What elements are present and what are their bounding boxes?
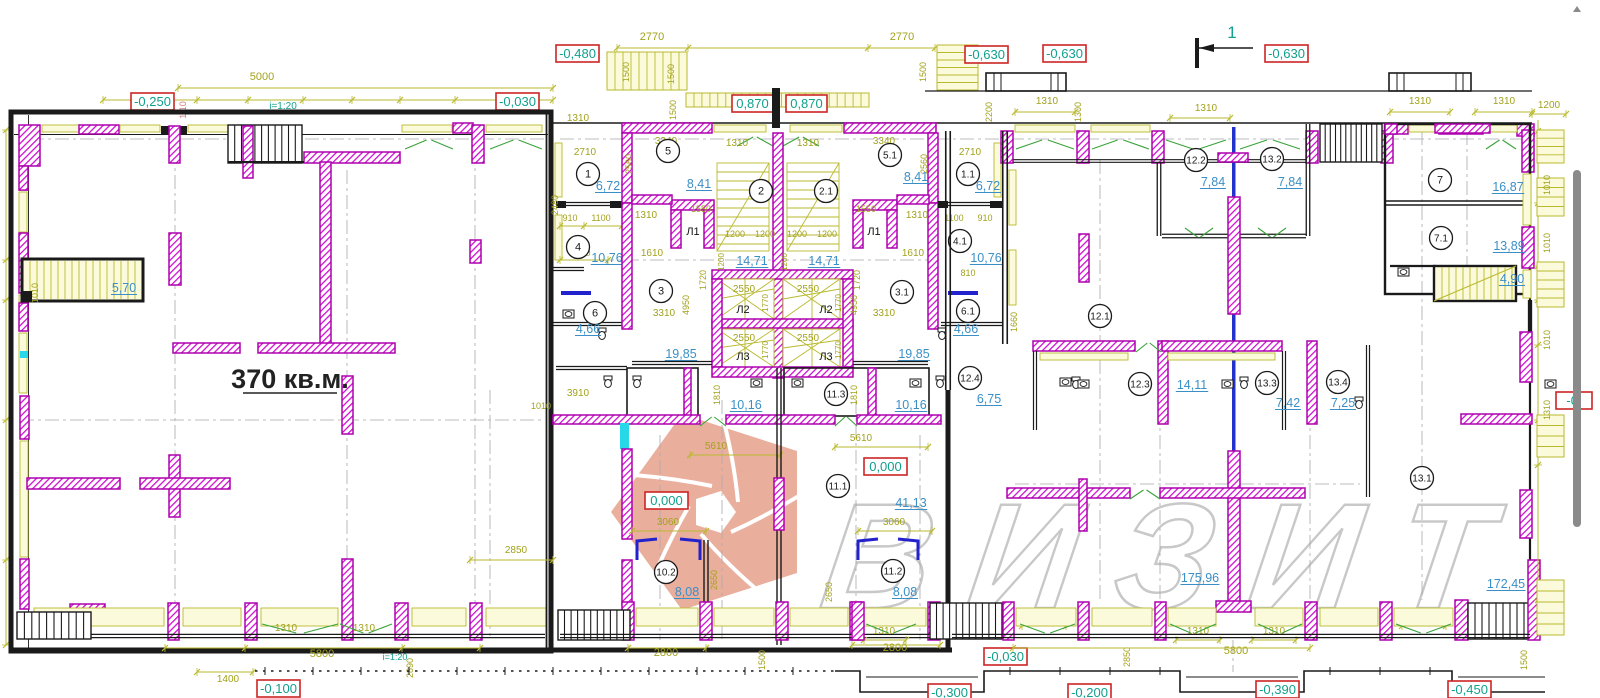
svg-text:Л1: Л1 (686, 226, 699, 238)
svg-text:172,45: 172,45 (1487, 577, 1525, 591)
svg-text:6,72: 6,72 (596, 179, 620, 193)
svg-text:13.3: 13.3 (1257, 379, 1277, 390)
svg-text:5000: 5000 (250, 71, 274, 83)
svg-text:2710: 2710 (959, 147, 982, 158)
svg-text:3060: 3060 (657, 517, 680, 528)
svg-text:5: 5 (665, 146, 671, 158)
svg-text:1310: 1310 (635, 210, 658, 221)
svg-text:Л2: Л2 (819, 304, 832, 316)
svg-text:1810: 1810 (849, 385, 859, 405)
svg-text:10,76: 10,76 (591, 251, 622, 265)
svg-text:13.1: 13.1 (1412, 474, 1432, 485)
svg-text:1310: 1310 (1036, 96, 1059, 107)
svg-text:910: 910 (562, 213, 577, 223)
svg-text:5610: 5610 (705, 441, 728, 452)
svg-text:Л3: Л3 (819, 351, 832, 363)
svg-text:1010: 1010 (1542, 330, 1552, 350)
svg-text:3: 3 (658, 286, 664, 298)
svg-text:1550: 1550 (856, 204, 876, 214)
svg-text:4950: 4950 (849, 295, 859, 315)
svg-text:7,25: 7,25 (1331, 396, 1355, 410)
svg-text:175,96: 175,96 (1181, 571, 1219, 585)
svg-text:1200: 1200 (1538, 100, 1561, 111)
svg-text:2.1: 2.1 (819, 187, 833, 198)
svg-text:14,11: 14,11 (1177, 378, 1207, 392)
svg-text:2770: 2770 (890, 31, 914, 43)
svg-text:4.1: 4.1 (953, 237, 967, 248)
svg-text:-0,630: -0,630 (1046, 46, 1083, 61)
svg-text:1770: 1770 (761, 294, 770, 312)
svg-text:1720: 1720 (698, 270, 708, 290)
svg-text:1.1: 1.1 (961, 170, 975, 181)
svg-text:13,89: 13,89 (1493, 239, 1524, 253)
svg-text:1310: 1310 (275, 623, 298, 634)
svg-text:-0,200: -0,200 (1071, 685, 1108, 698)
svg-text:-0,630: -0,630 (968, 47, 1005, 62)
svg-text:5,70: 5,70 (112, 281, 136, 295)
svg-text:0,000: 0,000 (869, 459, 902, 474)
svg-text:2770: 2770 (640, 31, 664, 43)
svg-text:-0,300: -0,300 (931, 685, 968, 698)
svg-text:19,85: 19,85 (665, 347, 696, 361)
svg-text:1770: 1770 (761, 341, 770, 359)
svg-text:12.1: 12.1 (1090, 312, 1110, 323)
svg-text:1810: 1810 (712, 385, 722, 405)
svg-text:1: 1 (585, 169, 591, 181)
svg-text:1500: 1500 (1519, 650, 1529, 670)
svg-text:Л3: Л3 (736, 351, 749, 363)
svg-text:0,870: 0,870 (790, 96, 823, 111)
svg-text:13.4: 13.4 (1328, 378, 1348, 389)
svg-text:1310: 1310 (726, 138, 749, 149)
svg-text:1500: 1500 (918, 62, 928, 82)
svg-text:1010: 1010 (1542, 175, 1552, 195)
svg-text:1: 1 (1227, 23, 1236, 42)
svg-text:1310: 1310 (1542, 400, 1552, 420)
svg-text:1310: 1310 (906, 210, 929, 221)
svg-text:1310: 1310 (1195, 103, 1218, 114)
svg-text:13.2: 13.2 (1262, 155, 1282, 166)
svg-text:6: 6 (592, 308, 598, 320)
svg-text:1550: 1550 (691, 204, 711, 214)
svg-text:5.1: 5.1 (883, 151, 897, 162)
svg-text:-0,030: -0,030 (499, 94, 536, 109)
svg-text:2850: 2850 (505, 545, 528, 556)
svg-text:-0,250: -0,250 (134, 94, 171, 109)
svg-text:4,66: 4,66 (576, 322, 600, 336)
svg-text:2890: 2890 (405, 658, 415, 678)
svg-text:i=1:20: i=1:20 (383, 652, 408, 662)
svg-text:5800: 5800 (310, 648, 334, 660)
svg-text:1770: 1770 (834, 294, 843, 312)
svg-text:1720: 1720 (852, 270, 862, 290)
svg-text:1400: 1400 (217, 674, 240, 685)
svg-text:810: 810 (960, 268, 975, 278)
svg-text:2650: 2650 (824, 582, 834, 602)
svg-text:2550: 2550 (733, 284, 756, 295)
svg-text:1310: 1310 (353, 623, 376, 634)
svg-text:1010: 1010 (1542, 233, 1552, 253)
svg-text:1200: 1200 (787, 229, 807, 239)
svg-text:1610: 1610 (902, 248, 925, 259)
svg-text:12.2: 12.2 (1186, 156, 1206, 167)
svg-text:1200: 1200 (755, 229, 775, 239)
svg-text:2: 2 (758, 186, 764, 198)
svg-text:2480: 2480 (550, 195, 560, 215)
svg-text:7: 7 (1437, 175, 1443, 187)
svg-text:8,41: 8,41 (904, 170, 928, 184)
svg-text:14,71: 14,71 (808, 254, 839, 268)
svg-text:1100: 1100 (944, 213, 963, 223)
svg-text:1200: 1200 (717, 253, 726, 271)
svg-text:3060: 3060 (883, 517, 906, 528)
svg-text:1610: 1610 (641, 248, 664, 259)
svg-text:10,16: 10,16 (895, 398, 926, 412)
svg-text:2850: 2850 (1122, 647, 1132, 667)
svg-text:-0,480: -0,480 (559, 46, 596, 61)
svg-text:3310: 3310 (873, 308, 896, 319)
svg-text:6.1: 6.1 (961, 307, 975, 318)
svg-text:2650: 2650 (709, 570, 719, 590)
svg-text:1200: 1200 (725, 229, 745, 239)
svg-text:2800: 2800 (654, 647, 678, 659)
svg-text:4: 4 (575, 242, 581, 254)
svg-text:-0,630: -0,630 (1268, 46, 1305, 61)
svg-text:1310: 1310 (1493, 96, 1516, 107)
svg-text:1200: 1200 (780, 253, 789, 271)
svg-text:11.2: 11.2 (884, 567, 903, 578)
svg-text:11.1: 11.1 (829, 482, 848, 493)
svg-text:12.4: 12.4 (960, 374, 980, 385)
svg-text:4,66: 4,66 (954, 322, 978, 336)
svg-text:370 кв.м.: 370 кв.м. (231, 364, 349, 394)
svg-text:Л1: Л1 (867, 226, 880, 238)
svg-text:4950: 4950 (681, 295, 691, 315)
svg-text:3.1: 3.1 (895, 288, 909, 299)
svg-text:1500: 1500 (757, 650, 767, 670)
svg-text:1100: 1100 (591, 213, 610, 223)
svg-text:3910: 3910 (567, 388, 590, 399)
svg-text:4,90: 4,90 (1500, 272, 1524, 286)
svg-text:1770: 1770 (834, 341, 843, 359)
svg-text:8,08: 8,08 (893, 585, 917, 599)
svg-text:14,71: 14,71 (736, 254, 767, 268)
svg-text:3310: 3310 (653, 308, 676, 319)
svg-text:2550: 2550 (797, 284, 820, 295)
svg-text:6,75: 6,75 (977, 392, 1001, 406)
svg-text:-0,100: -0,100 (260, 681, 297, 696)
svg-text:8,41: 8,41 (687, 177, 711, 191)
svg-text:11.3: 11.3 (827, 390, 846, 401)
svg-text:1660: 1660 (1009, 312, 1019, 332)
svg-text:5610: 5610 (850, 433, 873, 444)
svg-text:1200: 1200 (817, 229, 837, 239)
svg-text:2560: 2560 (624, 154, 634, 174)
svg-text:2550: 2550 (797, 333, 820, 344)
svg-text:0,000: 0,000 (650, 493, 683, 508)
svg-text:2550: 2550 (733, 333, 756, 344)
svg-text:2800: 2800 (883, 642, 907, 654)
svg-text:7,84: 7,84 (1278, 175, 1302, 189)
svg-text:6,72: 6,72 (976, 179, 1000, 193)
svg-text:-0,450: -0,450 (1451, 682, 1488, 697)
svg-text:10,16: 10,16 (730, 398, 761, 412)
svg-text:0,870: 0,870 (736, 96, 769, 111)
svg-text:12.3: 12.3 (1130, 380, 1150, 391)
svg-text:7,42: 7,42 (1276, 396, 1300, 410)
svg-text:1500: 1500 (668, 100, 678, 120)
svg-text:7,84: 7,84 (1201, 175, 1225, 189)
svg-text:-0,030: -0,030 (987, 649, 1024, 664)
svg-text:910: 910 (977, 213, 992, 223)
svg-text:5800: 5800 (1224, 645, 1248, 657)
svg-text:19,85: 19,85 (898, 347, 929, 361)
svg-text:1310: 1310 (797, 138, 820, 149)
svg-text:-0,390: -0,390 (1259, 682, 1296, 697)
svg-text:2710: 2710 (574, 147, 597, 158)
svg-text:1500: 1500 (666, 64, 676, 84)
svg-text:41,13: 41,13 (895, 496, 926, 510)
svg-text:10,76: 10,76 (970, 251, 1001, 265)
svg-text:1010: 1010 (531, 401, 551, 411)
svg-text:1500: 1500 (621, 62, 631, 82)
svg-text:1310: 1310 (1409, 96, 1432, 107)
svg-text:Л2: Л2 (736, 304, 749, 316)
svg-text:8,08: 8,08 (675, 585, 699, 599)
svg-text:2200: 2200 (984, 102, 994, 122)
svg-text:10.2: 10.2 (656, 568, 676, 579)
svg-text:16,87: 16,87 (1492, 180, 1523, 194)
svg-text:7.1: 7.1 (1434, 234, 1448, 245)
